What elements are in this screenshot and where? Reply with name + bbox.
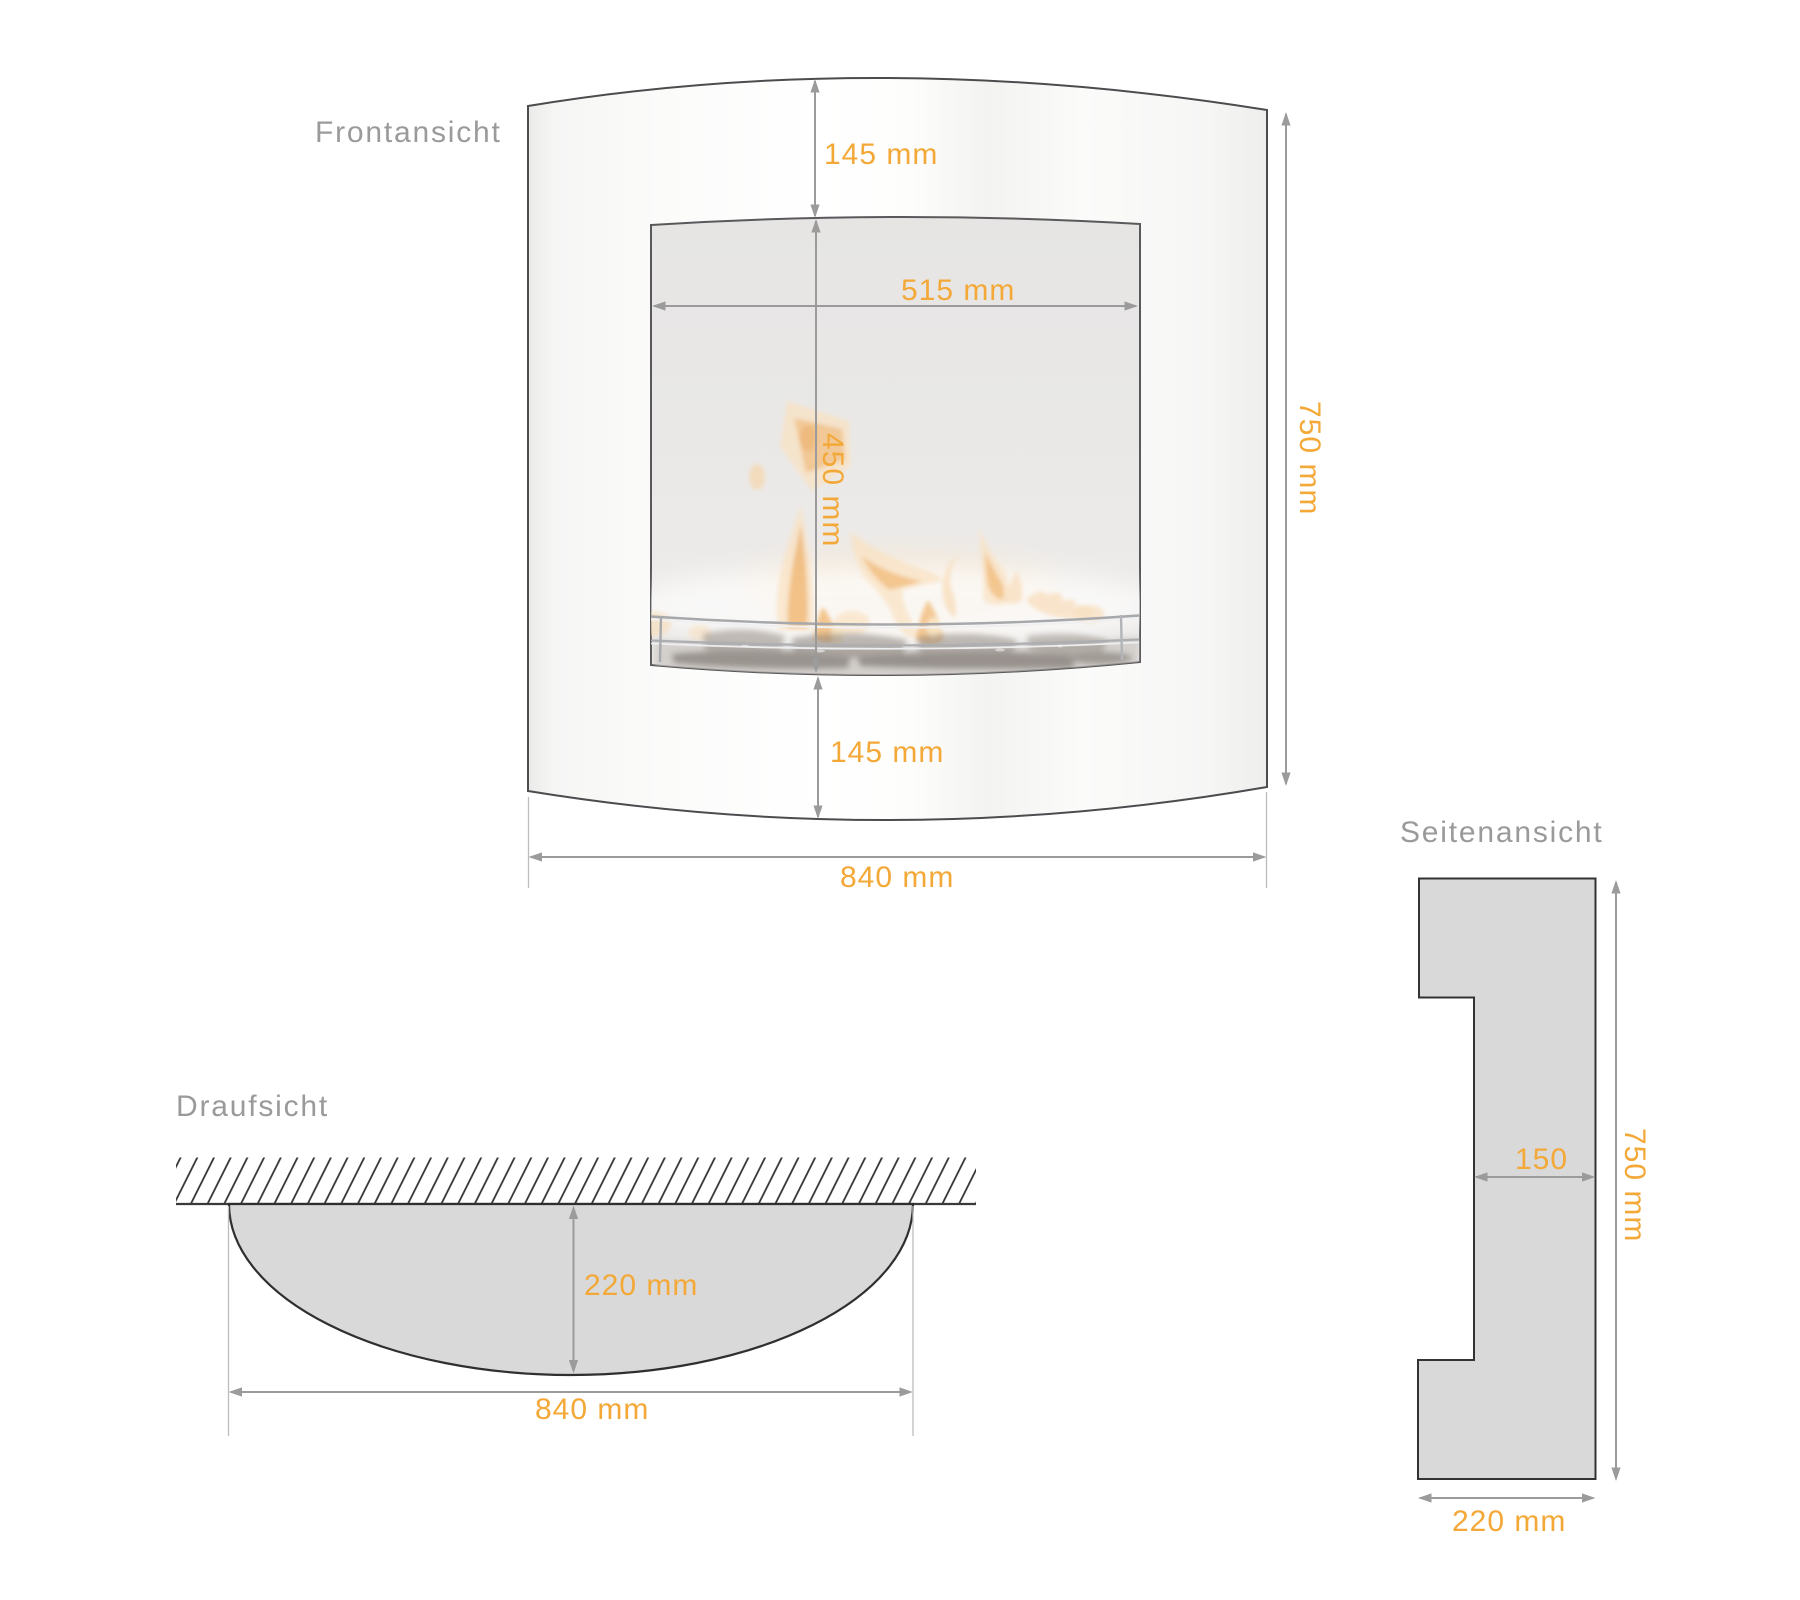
svg-text:220 mm: 220 mm bbox=[584, 1269, 698, 1302]
svg-text:Frontansicht: Frontansicht bbox=[315, 116, 502, 149]
svg-text:840 mm: 840 mm bbox=[535, 1393, 649, 1426]
svg-text:450 mm: 450 mm bbox=[816, 433, 849, 547]
svg-text:Draufsicht: Draufsicht bbox=[176, 1090, 329, 1123]
svg-text:750 mm: 750 mm bbox=[1293, 401, 1326, 515]
svg-text:750 mm: 750 mm bbox=[1618, 1128, 1651, 1242]
svg-text:840 mm: 840 mm bbox=[840, 861, 954, 894]
svg-text:Seitenansicht: Seitenansicht bbox=[1400, 816, 1604, 849]
svg-text:145 mm: 145 mm bbox=[824, 138, 938, 171]
svg-text:145 mm: 145 mm bbox=[830, 736, 944, 769]
svg-text:150: 150 bbox=[1515, 1143, 1568, 1176]
svg-text:220 mm: 220 mm bbox=[1452, 1505, 1566, 1538]
svg-text:515 mm: 515 mm bbox=[901, 274, 1015, 307]
